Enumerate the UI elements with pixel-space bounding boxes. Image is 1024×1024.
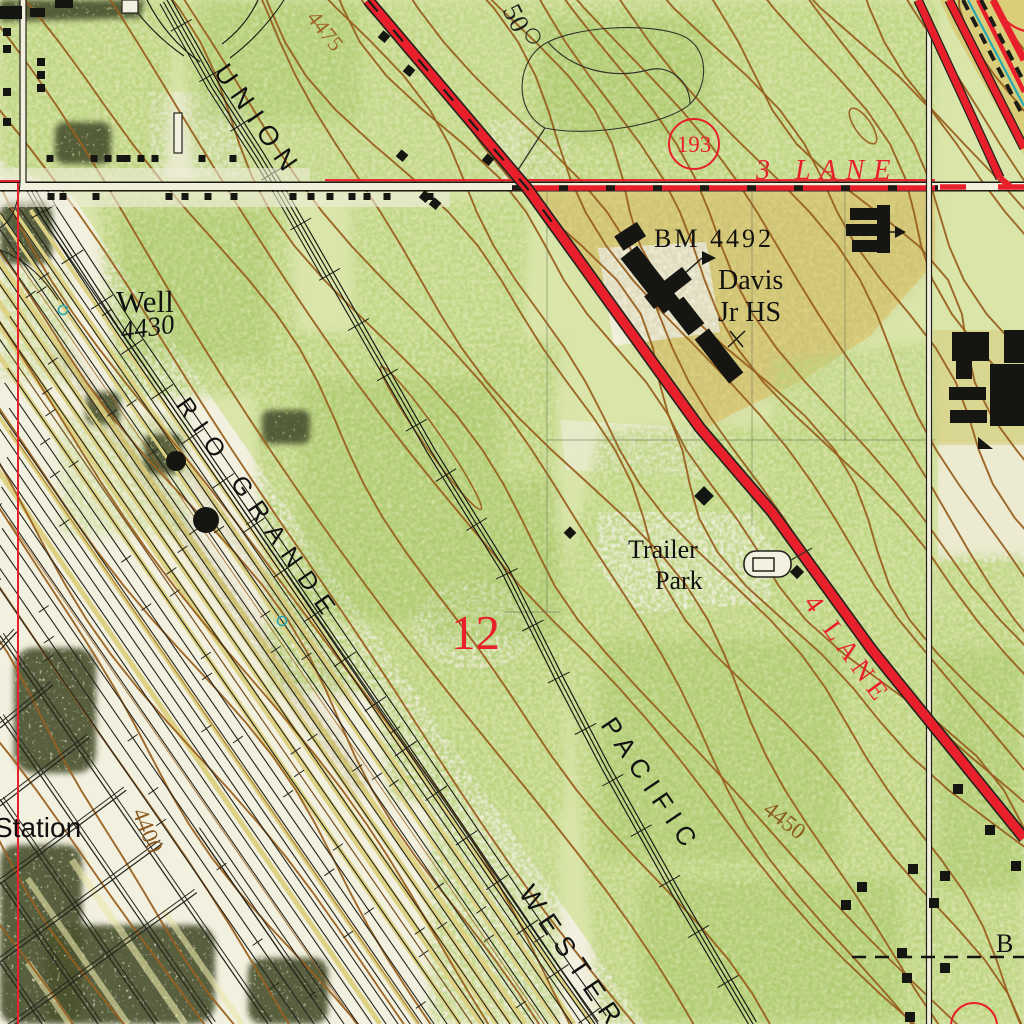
svg-text:Davis: Davis	[718, 265, 783, 296]
svg-text:Park: Park	[655, 566, 703, 595]
svg-text:Trailer: Trailer	[628, 535, 698, 564]
svg-text:Jr HS: Jr HS	[718, 297, 781, 328]
svg-text:Station: Station	[0, 812, 81, 843]
svg-text:B: B	[996, 929, 1013, 958]
svg-text:BM 4492: BM 4492	[654, 224, 774, 253]
svg-text:3 LANE: 3 LANE	[755, 155, 899, 186]
svg-text:193: 193	[677, 132, 712, 157]
svg-text:12: 12	[451, 605, 500, 660]
